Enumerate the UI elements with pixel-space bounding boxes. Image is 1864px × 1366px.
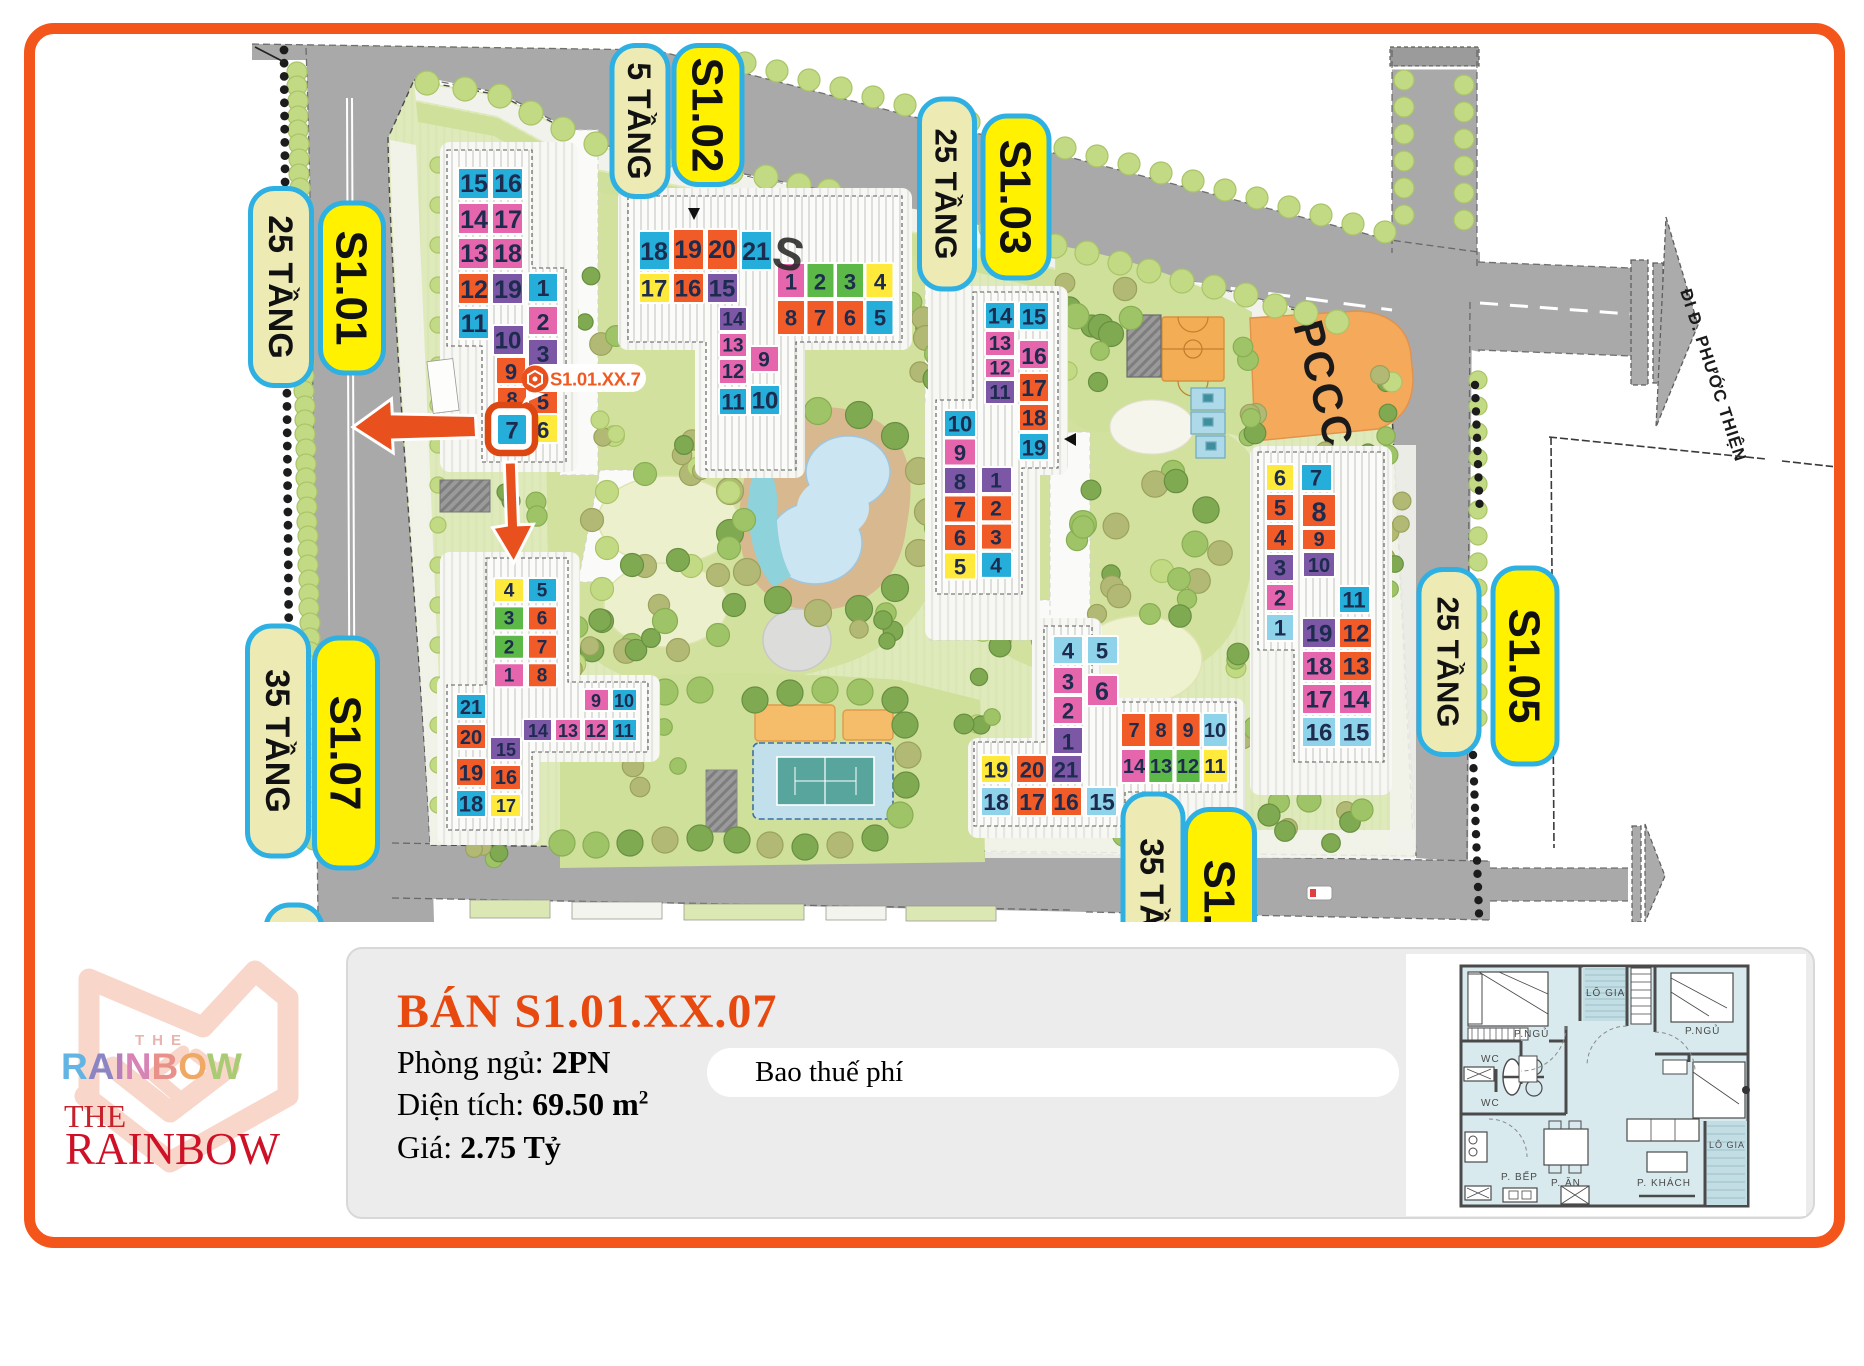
svg-text:P.NGỦ: P.NGỦ <box>1685 1024 1720 1037</box>
svg-text:LÔ GIA: LÔ GIA <box>1709 1140 1745 1150</box>
svg-text:P. KHÁCH: P. KHÁCH <box>1637 1176 1691 1189</box>
svg-text:LÔ GIA: LÔ GIA <box>1586 986 1625 999</box>
svg-text:WC: WC <box>1481 1054 1500 1065</box>
svg-text:WC: WC <box>1481 1098 1500 1109</box>
svg-text:RAINBOW: RAINBOW <box>65 1124 281 1174</box>
svg-text:P. BẾP: P. BẾP <box>1501 1170 1538 1183</box>
svg-text:RAINBOW: RAINBOW <box>61 1046 242 1087</box>
svg-text:P. ĂN: P. ĂN <box>1551 1176 1581 1189</box>
svg-text:P.NGỦ: P.NGỦ <box>1514 1027 1549 1040</box>
